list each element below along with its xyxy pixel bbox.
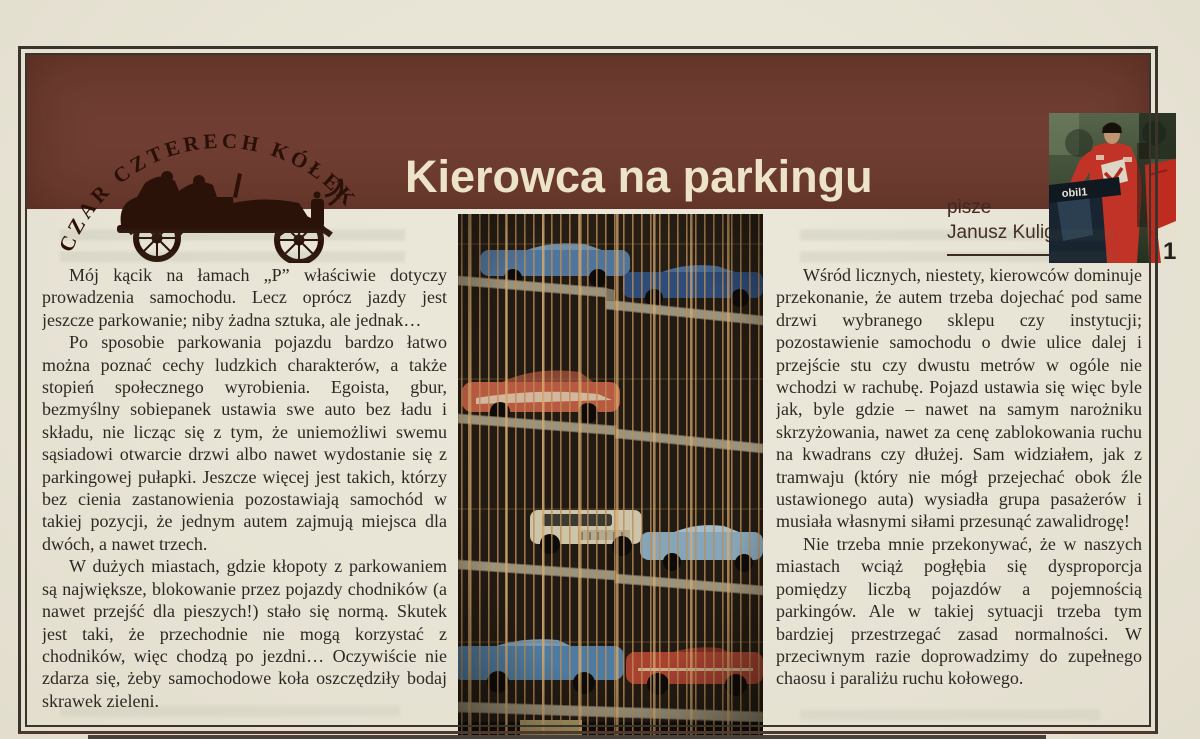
byline-label: pisze [947,195,1055,220]
rubric-graphic: CZAR CZTERECH KÓŁEK [57,113,387,263]
author-photo: obil1 1 [1049,113,1176,263]
paragraph: W dużych miastach, gdzie kłopoty z parko… [42,555,447,712]
byline-name: Janusz Kulig [947,220,1055,245]
paragraph: Mój kącik na łamach „P” właściwie dotycz… [42,264,447,331]
page-title: Kierowca na parkingu [405,151,873,203]
byline-rule [947,254,1053,256]
door-number: 1 [1163,238,1176,263]
sponsor-text: obil1 [1061,186,1087,200]
article-left-column: Mój kącik na łamach „P” właściwie dotycz… [42,264,447,732]
magazine-page: CZAR CZTERECH KÓŁEK [0,0,1200,739]
parking-garage-photo [458,214,763,735]
article-right-column: Wśród licznych, niestety, kierowców domi… [776,264,1142,732]
paragraph: Wśród licznych, niestety, kierowców domi… [776,264,1142,533]
header-banner: CZAR CZTERECH KÓŁEK [27,55,1149,209]
scan-edge-shadow [88,735,1046,739]
byline: pisze Janusz Kulig [947,195,1055,245]
race-car-door: 1 [1145,159,1176,263]
paragraph: Nie trzeba mnie przekonywać, że w naszyc… [776,533,1142,690]
vintage-car-icon [117,171,342,262]
paragraph: Po sposobie parkowania pojazdu bardzo ła… [42,331,447,555]
